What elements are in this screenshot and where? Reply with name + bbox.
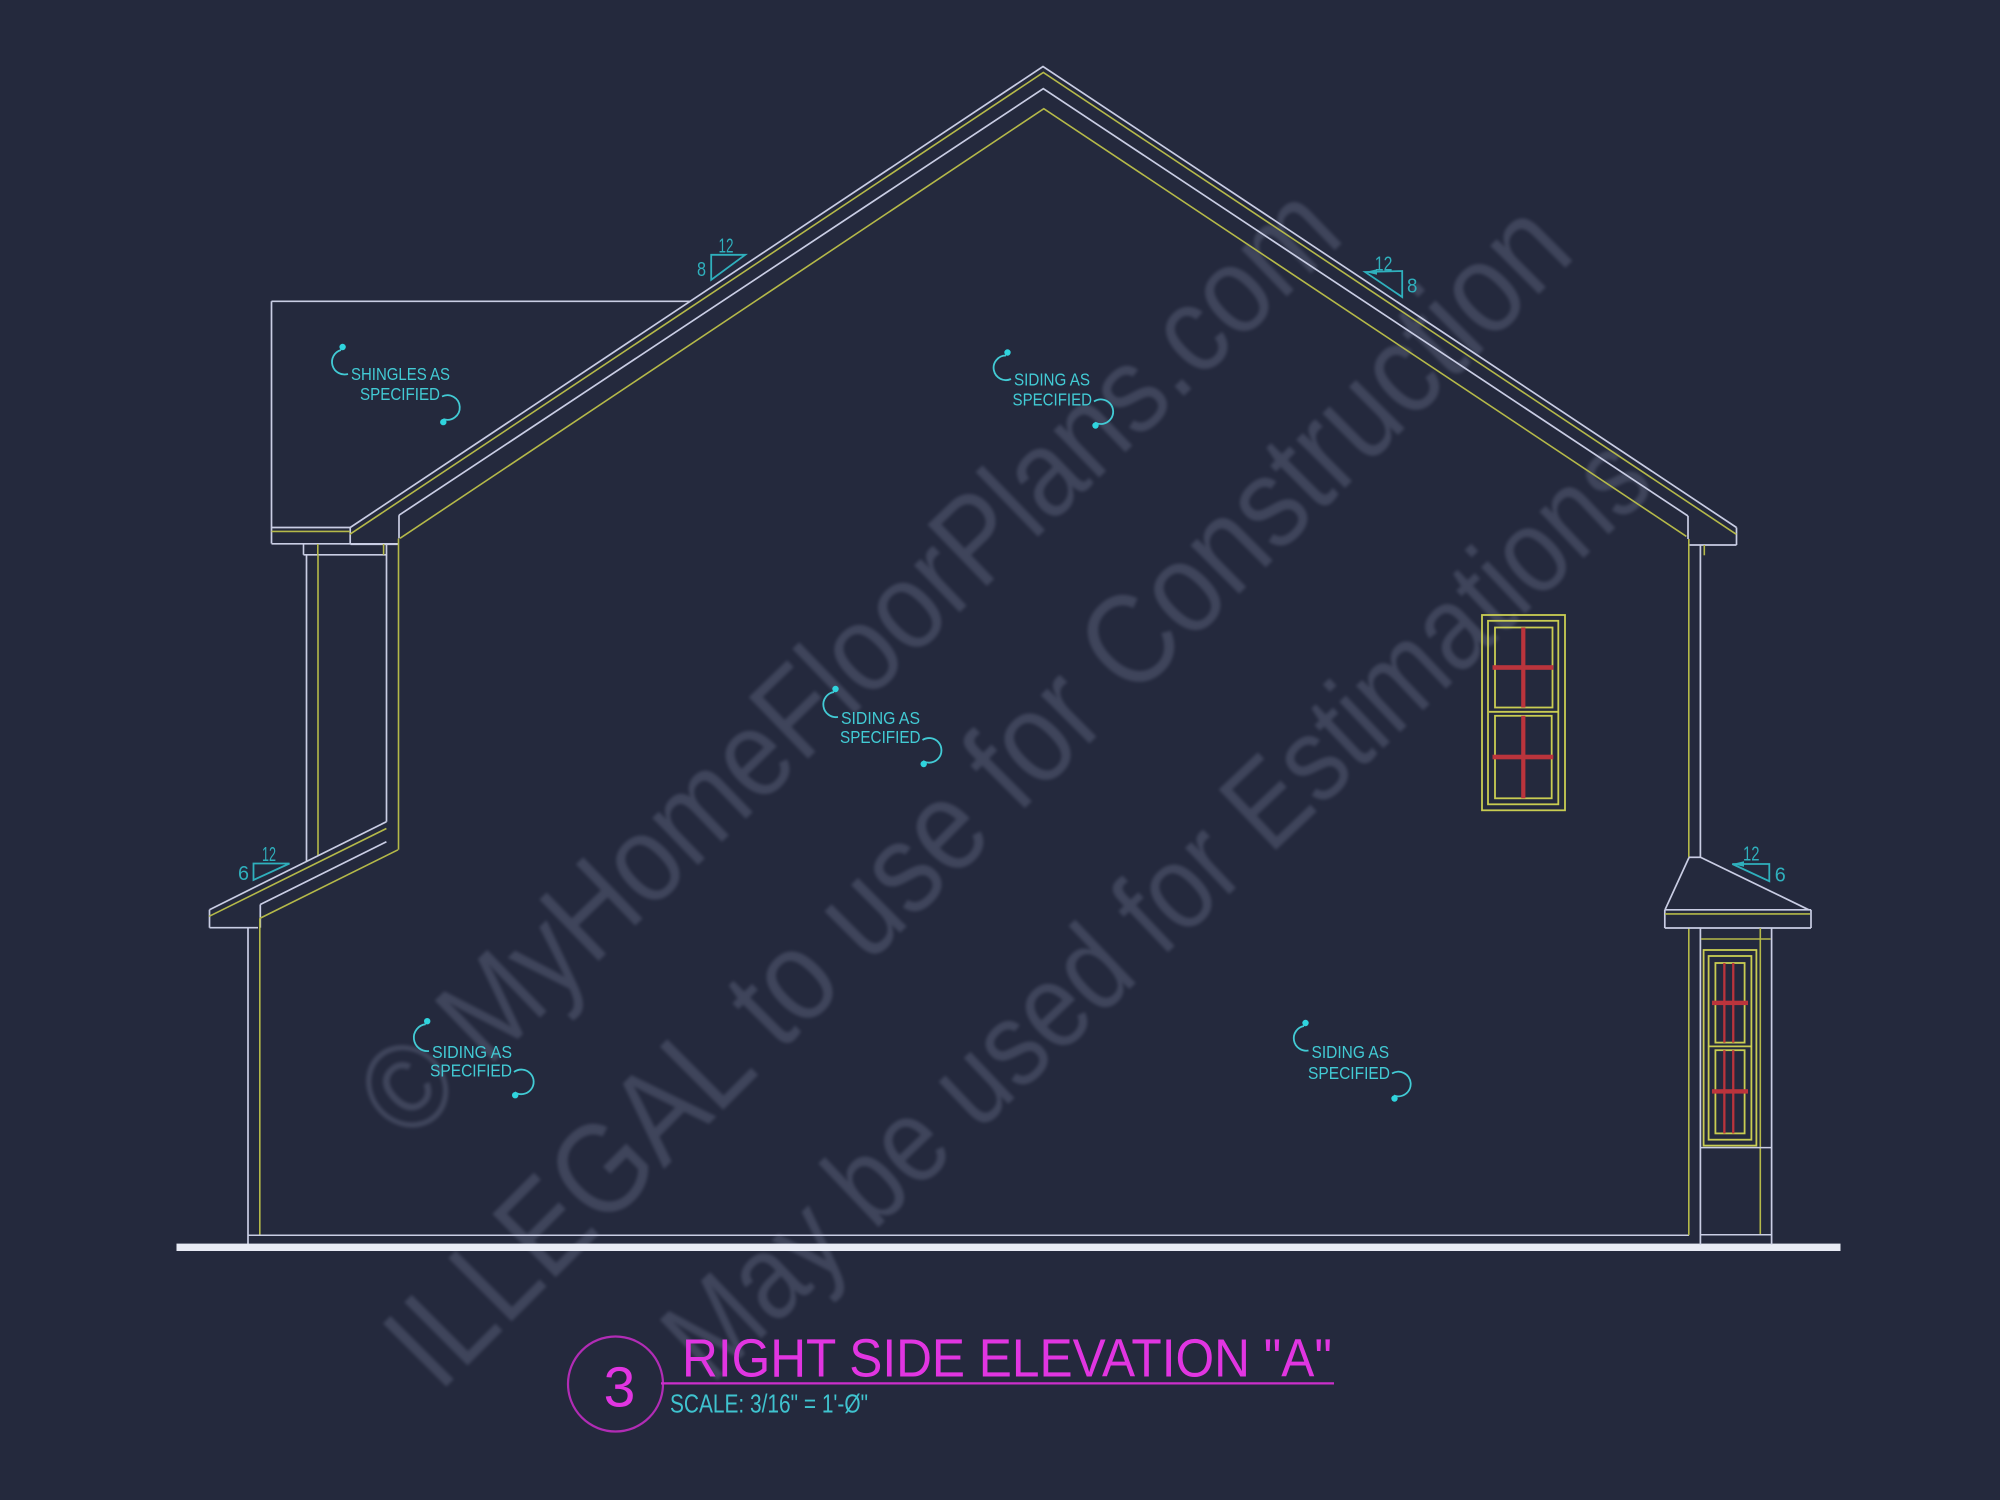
- svg-text:SPECIFIED: SPECIFIED: [1308, 1063, 1390, 1083]
- svg-text:SPECIFIED: SPECIFIED: [840, 727, 921, 747]
- svg-text:8: 8: [697, 259, 706, 281]
- svg-text:SIDING AS: SIDING AS: [1014, 370, 1090, 390]
- svg-text:6: 6: [238, 863, 249, 885]
- svg-text:SIDING AS: SIDING AS: [1312, 1042, 1390, 1062]
- svg-text:3: 3: [604, 1356, 636, 1420]
- svg-text:12: 12: [1375, 254, 1393, 276]
- svg-text:SHINGLES AS: SHINGLES AS: [351, 364, 450, 384]
- svg-text:SPECIFIED: SPECIFIED: [430, 1060, 512, 1080]
- svg-text:RIGHT SIDE ELEVATION "A": RIGHT SIDE ELEVATION "A": [682, 1329, 1332, 1389]
- svg-text:SPECIFIED: SPECIFIED: [1013, 390, 1093, 410]
- svg-text:SIDING AS: SIDING AS: [432, 1042, 512, 1062]
- svg-text:6: 6: [1775, 864, 1786, 886]
- svg-text:12: 12: [1743, 844, 1760, 866]
- svg-text:SCALE: 3/16" = 1'-Ø": SCALE: 3/16" = 1'-Ø": [670, 1389, 868, 1419]
- svg-text:8: 8: [1407, 276, 1417, 298]
- svg-text:SPECIFIED: SPECIFIED: [360, 384, 440, 404]
- svg-text:12: 12: [719, 236, 734, 258]
- svg-text:12: 12: [262, 844, 276, 866]
- svg-text:SIDING AS: SIDING AS: [841, 708, 920, 728]
